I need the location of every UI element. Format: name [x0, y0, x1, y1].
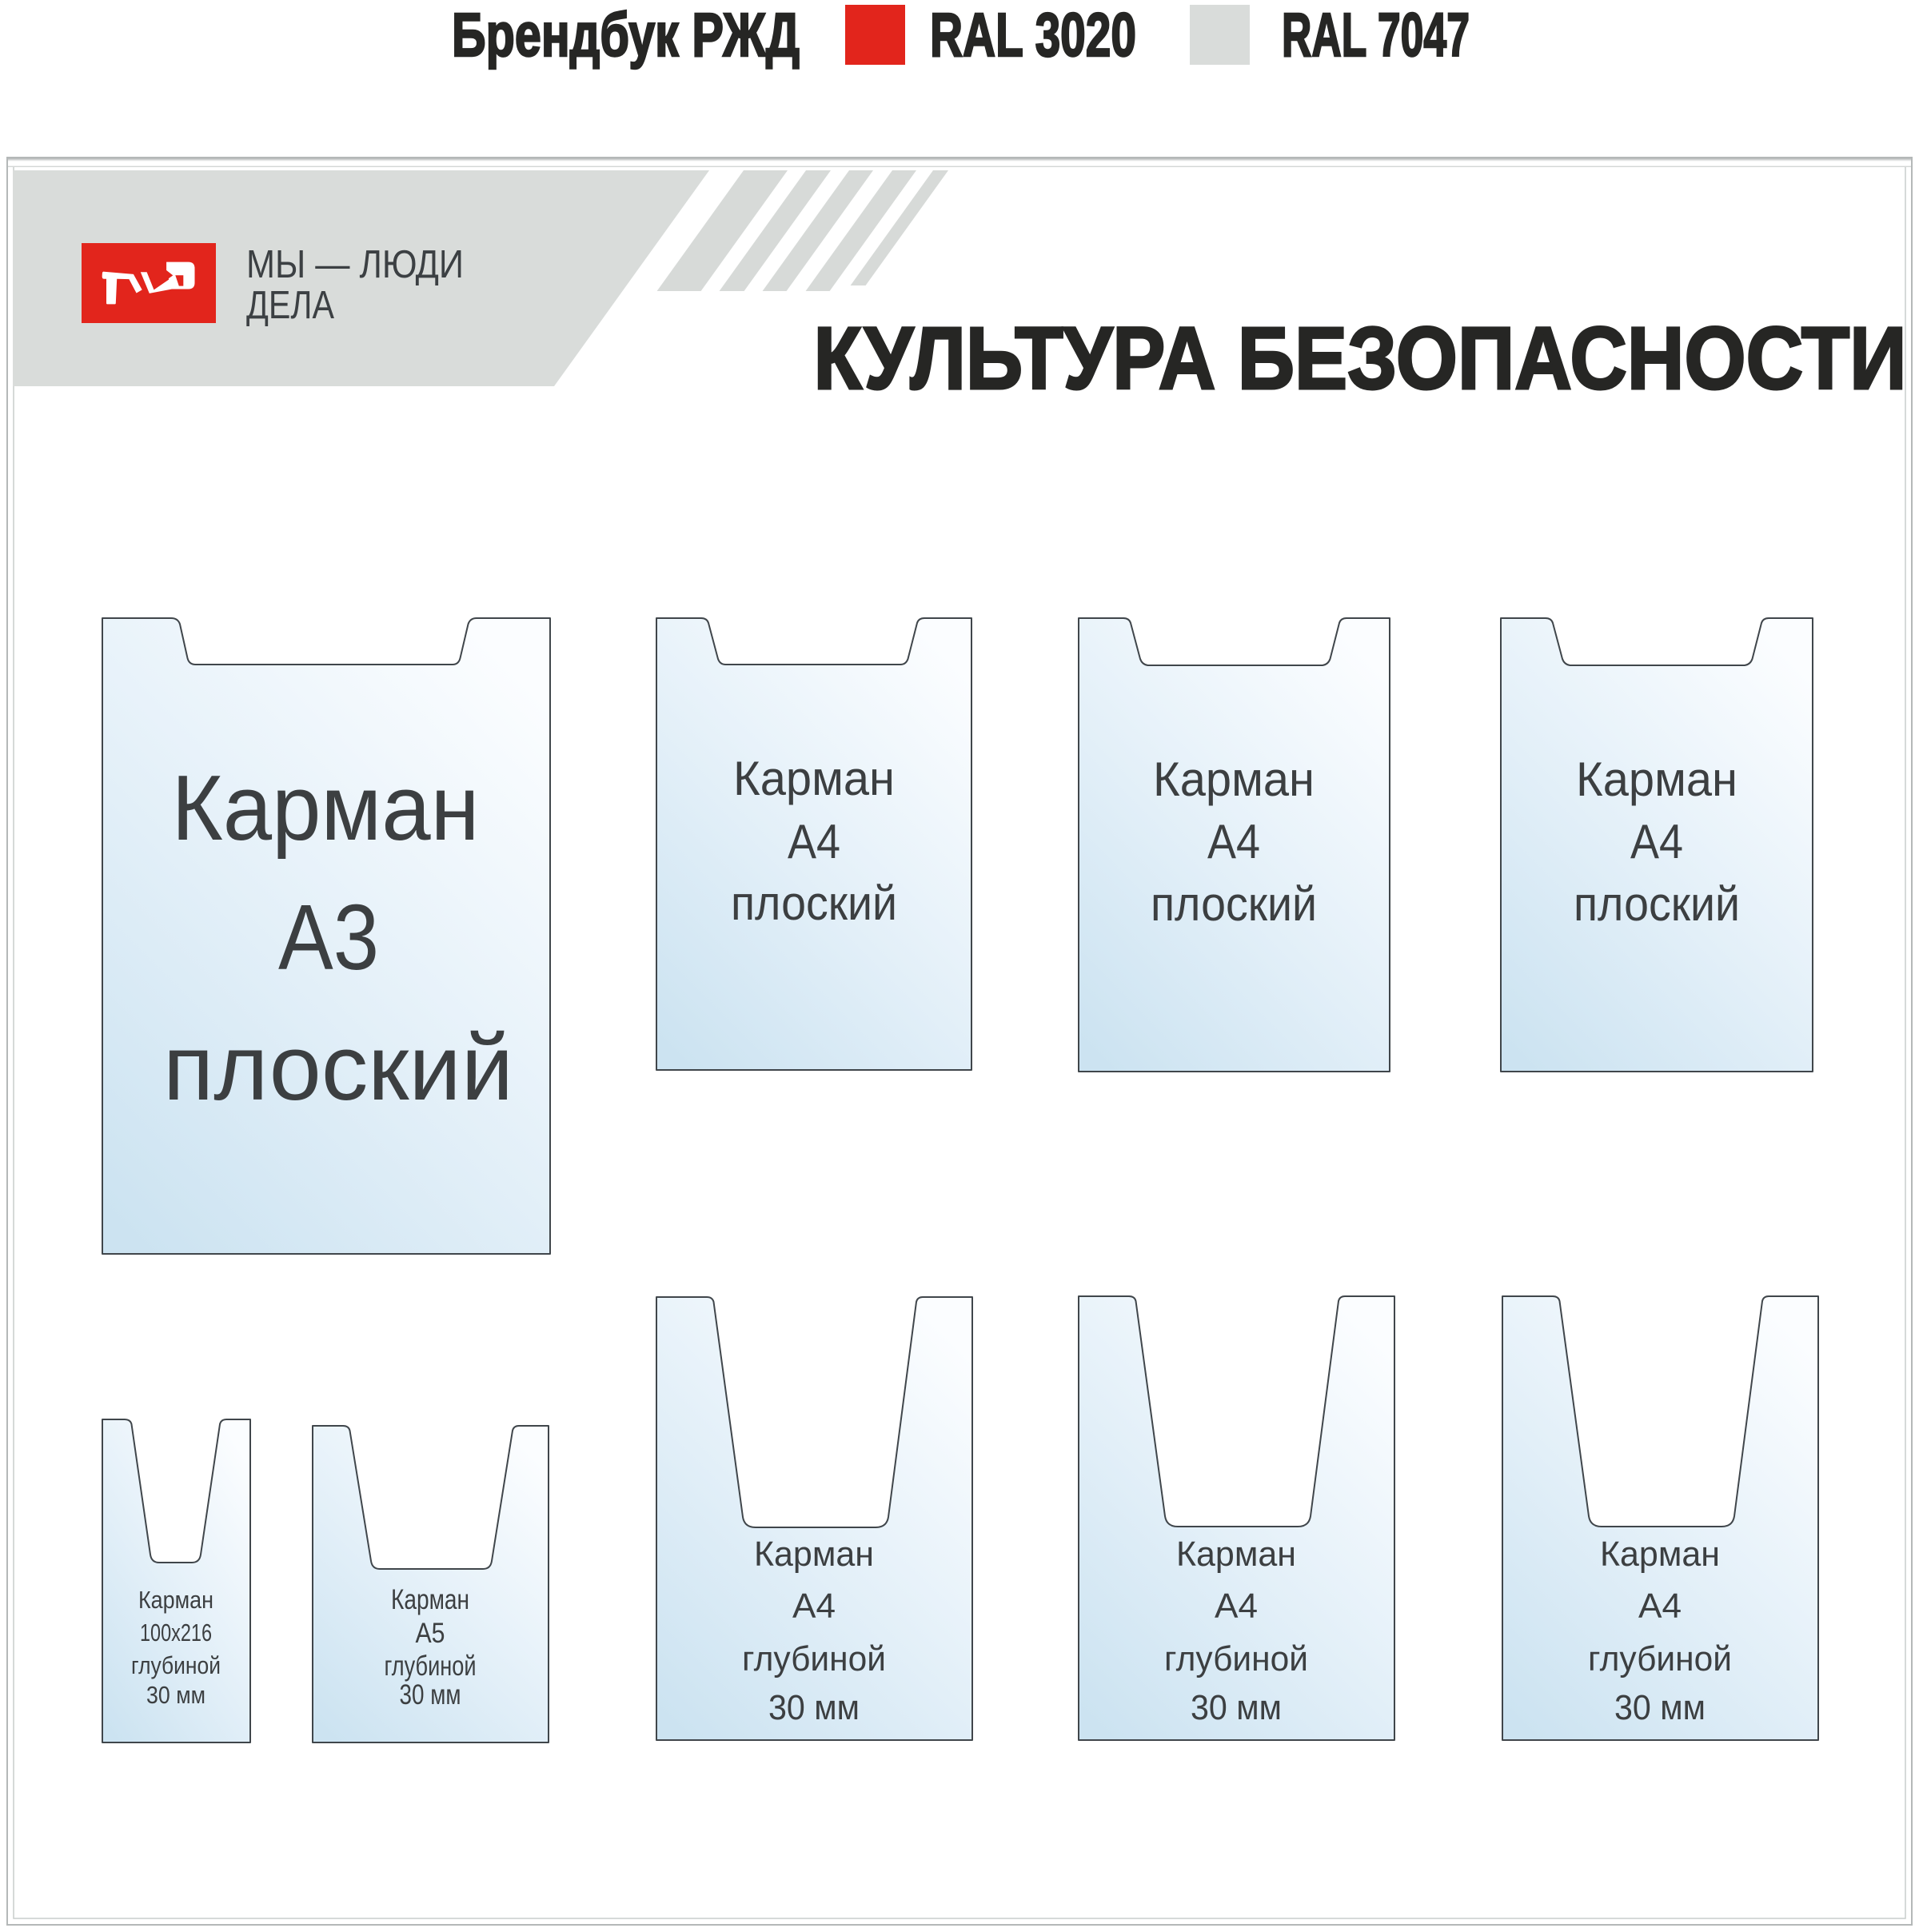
svg-text:А5: А5 — [416, 1618, 445, 1649]
svg-text:30 мм: 30 мм — [146, 1681, 205, 1709]
svg-text:Карман: Карман — [172, 756, 480, 860]
svg-text:А4: А4 — [1630, 815, 1683, 868]
svg-text:глубиной: глубиной — [742, 1639, 886, 1679]
svg-text:30 мм: 30 мм — [400, 1679, 461, 1710]
svg-text:30 мм: 30 мм — [1191, 1688, 1282, 1727]
svg-text:А4: А4 — [1207, 815, 1260, 868]
svg-text:30 мм: 30 мм — [768, 1688, 860, 1727]
svg-text:глубиной: глубиной — [1164, 1639, 1308, 1679]
svg-text:плоский: плоский — [1151, 877, 1317, 931]
svg-text:30 мм: 30 мм — [1614, 1688, 1706, 1727]
svg-text:Карман: Карман — [138, 1586, 213, 1614]
svg-text:Карман: Карман — [1176, 1535, 1296, 1574]
svg-text:Брендбук РЖД: Брендбук РЖД — [452, 1, 800, 70]
svg-text:А4: А4 — [788, 815, 840, 868]
svg-text:Карман: Карман — [1153, 752, 1315, 806]
svg-text:КУЛЬТУРА БЕЗОПАСНОСТИ: КУЛЬТУРА БЕЗОПАСНОСТИ — [814, 309, 1907, 408]
svg-text:RAL 3020: RAL 3020 — [930, 1, 1136, 70]
svg-text:ДЕЛА: ДЕЛА — [246, 284, 334, 327]
svg-text:Карман: Карман — [1600, 1535, 1720, 1574]
svg-text:глубиной: глубиной — [1588, 1639, 1732, 1679]
svg-text:плоский: плоский — [163, 1016, 513, 1120]
svg-text:плоский: плоский — [1574, 877, 1740, 931]
svg-text:А4: А4 — [1215, 1587, 1258, 1626]
svg-text:100х216: 100х216 — [140, 1619, 212, 1647]
svg-text:RAL 7047: RAL 7047 — [1282, 1, 1470, 70]
svg-text:МЫ — ЛЮДИ: МЫ — ЛЮДИ — [246, 243, 464, 286]
svg-text:А3: А3 — [278, 885, 379, 989]
svg-text:Карман: Карман — [1576, 752, 1737, 806]
svg-text:А4: А4 — [1638, 1587, 1682, 1626]
svg-text:Карман: Карман — [733, 752, 895, 805]
svg-text:плоский: плоский — [731, 876, 897, 930]
svg-text:глубиной: глубиной — [131, 1651, 221, 1679]
svg-text:глубиной: глубиной — [385, 1651, 477, 1682]
svg-text:Карман: Карман — [754, 1535, 874, 1574]
svg-text:А4: А4 — [792, 1587, 836, 1626]
svg-text:Карман: Карман — [391, 1584, 469, 1615]
